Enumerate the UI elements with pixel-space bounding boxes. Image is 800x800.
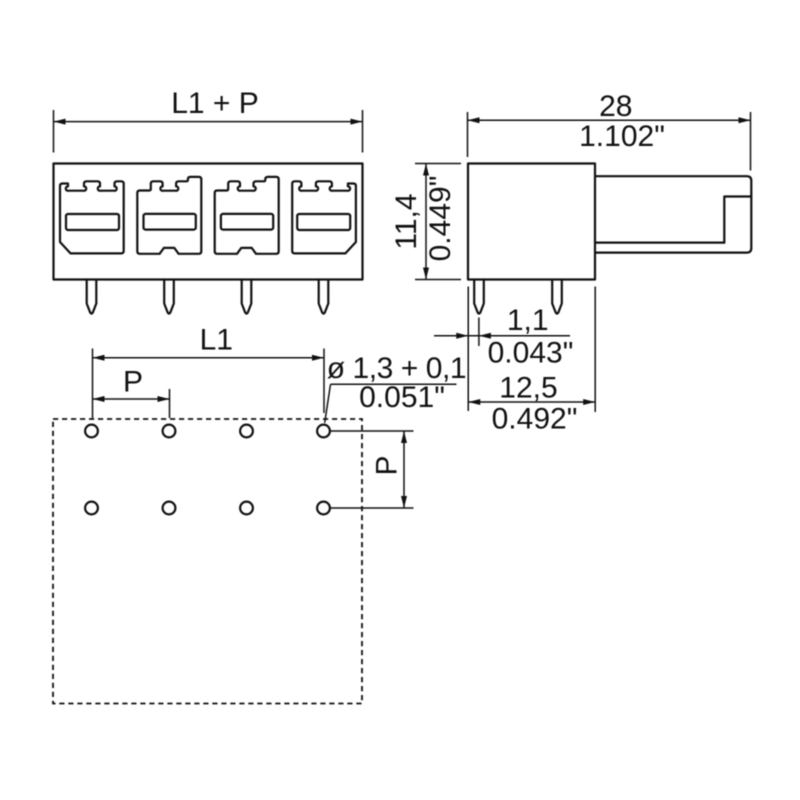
svg-text:12,5: 12,5 (499, 372, 557, 405)
svg-text:0.492": 0.492" (492, 403, 578, 436)
svg-text:L1 + P: L1 + P (171, 87, 259, 120)
svg-text:28: 28 (599, 90, 632, 123)
svg-text:L1: L1 (200, 323, 233, 356)
svg-text:P: P (370, 455, 403, 475)
svg-text:0.051": 0.051" (359, 381, 445, 414)
svg-text:P: P (123, 366, 143, 399)
svg-text:0.449": 0.449" (424, 176, 457, 262)
svg-text:1.102": 1.102" (579, 120, 665, 153)
svg-text:0.043": 0.043" (488, 337, 574, 370)
svg-text:ø 1,3 + 0,1: ø 1,3 + 0,1 (327, 352, 466, 385)
svg-text:11,4: 11,4 (390, 193, 423, 249)
svg-text:1,1: 1,1 (507, 304, 549, 337)
